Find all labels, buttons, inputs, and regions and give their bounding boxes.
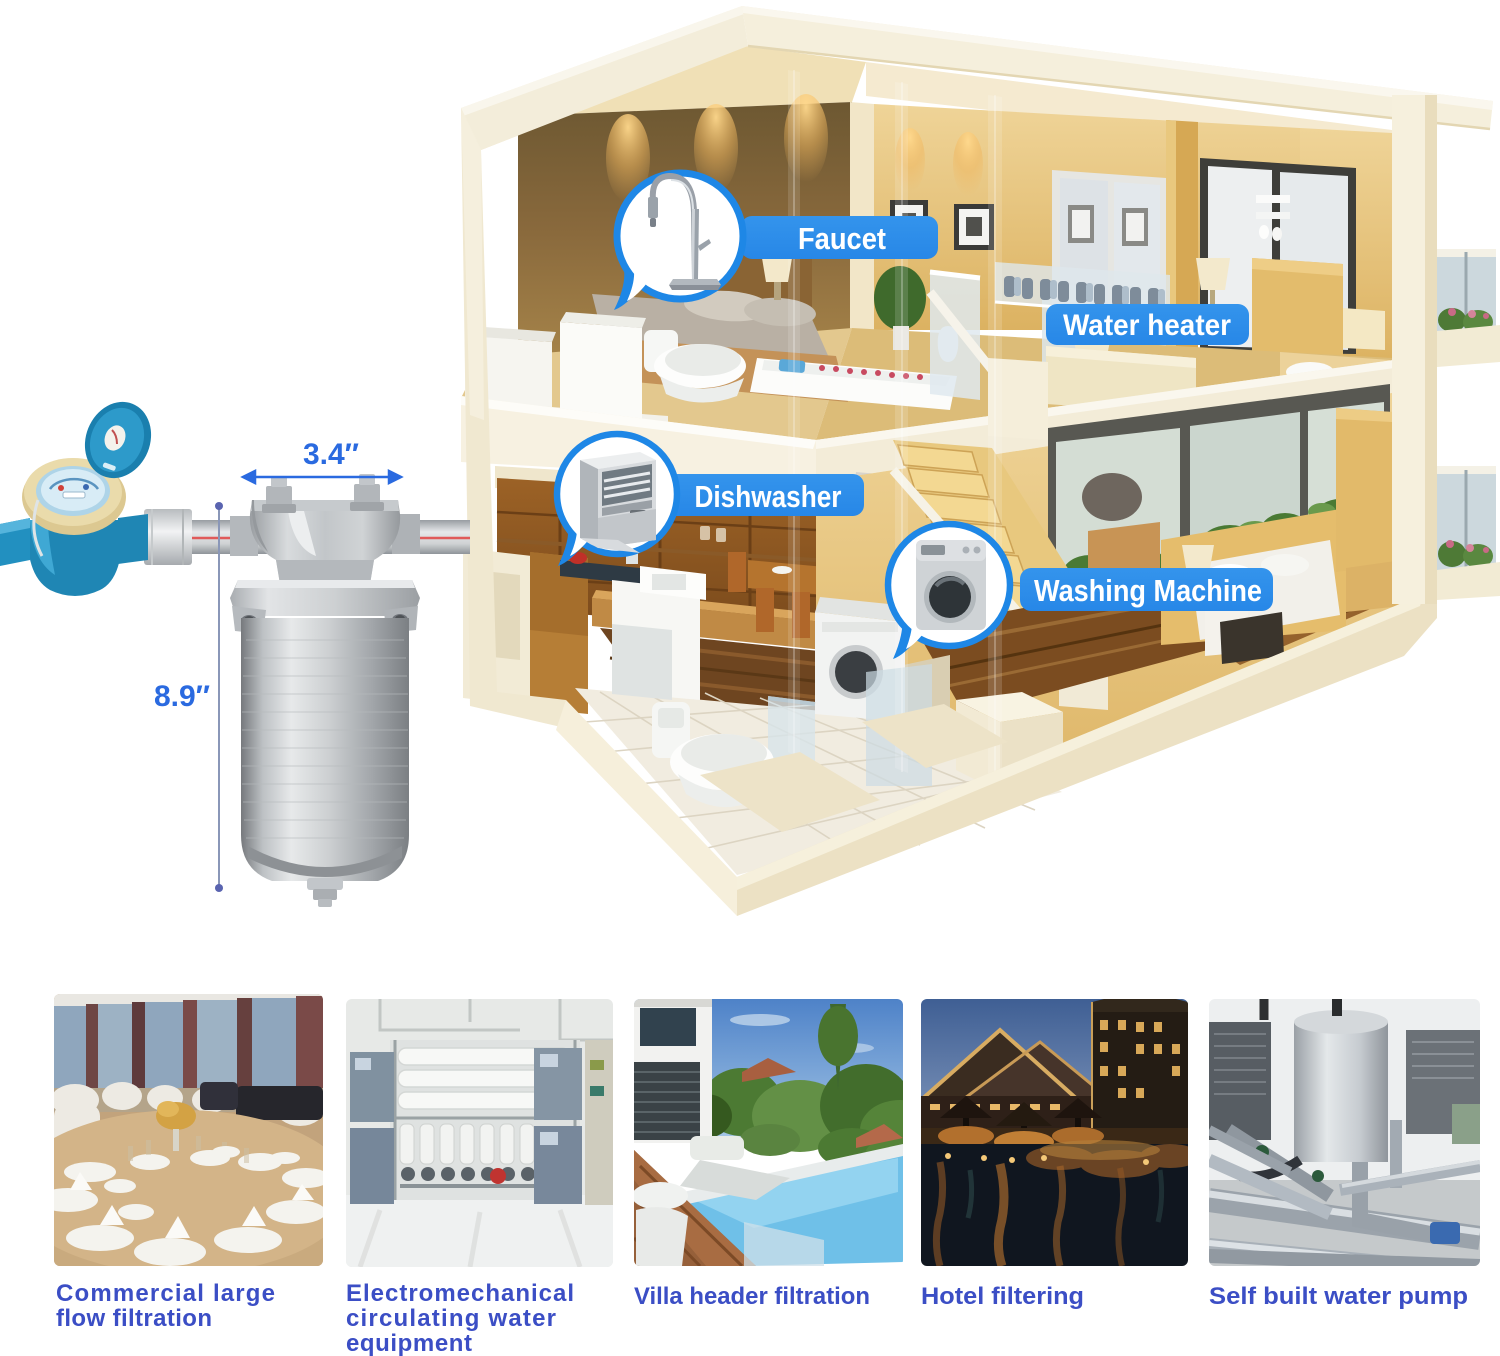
svg-text:Faucet: Faucet: [798, 221, 886, 256]
svg-text:Dishwasher: Dishwasher: [695, 479, 842, 514]
svg-text:Hotel filtering: Hotel filtering: [921, 1283, 1084, 1310]
svg-text:Villa header filtration: Villa header filtration: [634, 1283, 870, 1310]
svg-text:Water heater: Water heater: [1063, 309, 1231, 342]
svg-text:8.9″: 8.9″: [154, 680, 210, 713]
svg-text:Self built water pump: Self built water pump: [1209, 1283, 1468, 1310]
svg-text:Washing Machine: Washing Machine: [1034, 573, 1262, 608]
svg-text:Commercial largeflow filtratio: Commercial largeflow filtration: [56, 1280, 275, 1332]
svg-text:3.4″: 3.4″: [303, 438, 359, 471]
svg-text:Electromechanicalcirculating w: Electromechanicalcirculating waterequipm…: [346, 1280, 574, 1356]
